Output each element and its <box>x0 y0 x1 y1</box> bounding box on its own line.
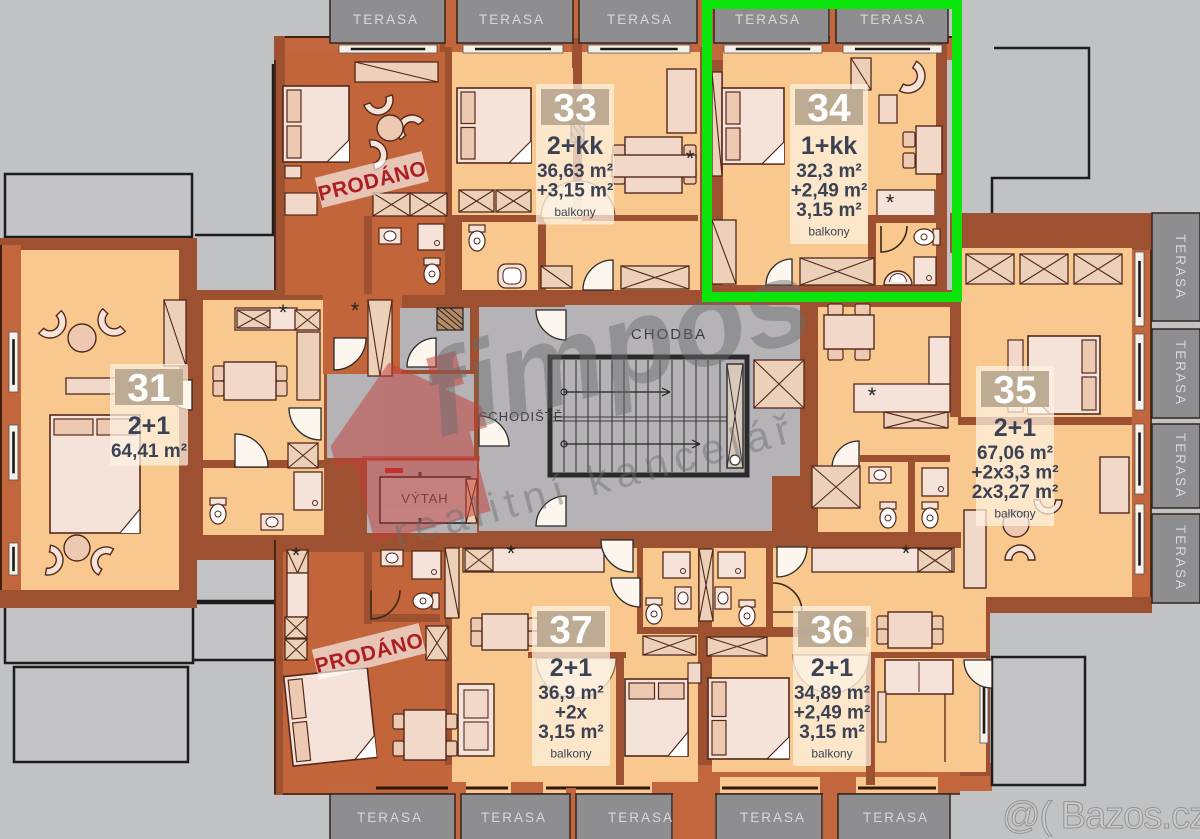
svg-text:*: * <box>507 541 516 566</box>
svg-text:TERASA: TERASA <box>863 810 929 825</box>
svg-text:3,15 m²: 3,15 m² <box>538 722 603 743</box>
svg-text:64,41 m²: 64,41 m² <box>111 441 187 462</box>
svg-text:3,15 m²: 3,15 m² <box>796 200 861 221</box>
svg-text:balkony: balkony <box>808 225 849 239</box>
svg-text:*: * <box>279 300 288 325</box>
svg-text:TERASA: TERASA <box>740 810 806 825</box>
svg-text:2+1: 2+1 <box>128 412 171 440</box>
svg-text:2x3,27 m²: 2x3,27 m² <box>972 482 1059 503</box>
svg-text:36: 36 <box>810 609 853 652</box>
svg-text:2+1: 2+1 <box>994 414 1037 442</box>
svg-text:TERASA: TERASA <box>607 12 673 27</box>
svg-text:TERASA: TERASA <box>1173 234 1188 300</box>
svg-text:TERASA: TERASA <box>608 810 674 825</box>
svg-text:+2x3,3 m²: +2x3,3 m² <box>971 463 1058 484</box>
svg-text:balkony: balkony <box>550 747 591 761</box>
svg-text:*: * <box>886 190 895 215</box>
svg-text:2+1: 2+1 <box>811 654 854 682</box>
svg-text:TERASA: TERASA <box>481 810 547 825</box>
svg-text:*: * <box>351 298 360 323</box>
svg-text:balkony: balkony <box>994 507 1035 521</box>
svg-text:balkony: balkony <box>811 747 852 761</box>
svg-text:TERASA: TERASA <box>353 12 419 27</box>
svg-text:+2x: +2x <box>555 703 588 724</box>
svg-text:*: * <box>868 383 877 408</box>
svg-text:37: 37 <box>549 609 592 652</box>
svg-text:36,63 m²: 36,63 m² <box>537 161 613 182</box>
svg-text:*: * <box>292 543 301 568</box>
svg-text:TERASA: TERASA <box>1173 525 1188 591</box>
svg-text:TERASA: TERASA <box>1173 340 1188 406</box>
svg-text:TERASA: TERASA <box>357 810 423 825</box>
svg-text:36,9 m²: 36,9 m² <box>538 683 603 704</box>
svg-text:@( Bazos.cz: @( Bazos.cz <box>1002 795 1200 837</box>
svg-text:31: 31 <box>127 367 170 410</box>
svg-text:balkony: balkony <box>554 205 595 219</box>
svg-text:34: 34 <box>807 87 851 130</box>
svg-text:*: * <box>686 146 695 171</box>
svg-text:TERASA: TERASA <box>1173 433 1188 499</box>
svg-text:TERASA: TERASA <box>479 12 545 27</box>
svg-text:+3,15 m²: +3,15 m² <box>537 181 614 202</box>
svg-text:2+kk: 2+kk <box>547 132 603 160</box>
svg-text:34,89 m²: 34,89 m² <box>794 683 870 704</box>
svg-text:+2,49 m²: +2,49 m² <box>791 181 868 202</box>
svg-text:1+kk: 1+kk <box>801 132 857 160</box>
svg-text:+2,49 m²: +2,49 m² <box>794 703 871 724</box>
svg-text:33: 33 <box>553 87 596 130</box>
svg-text:3,15 m²: 3,15 m² <box>799 722 864 743</box>
svg-text:67,06 m²: 67,06 m² <box>977 443 1053 464</box>
svg-text:35: 35 <box>993 369 1036 412</box>
svg-text:32,3 m²: 32,3 m² <box>796 161 861 182</box>
svg-text:TERASA: TERASA <box>735 12 801 27</box>
svg-text:2+1: 2+1 <box>550 654 593 682</box>
svg-text:*: * <box>902 541 911 566</box>
svg-text:TERASA: TERASA <box>860 12 926 27</box>
